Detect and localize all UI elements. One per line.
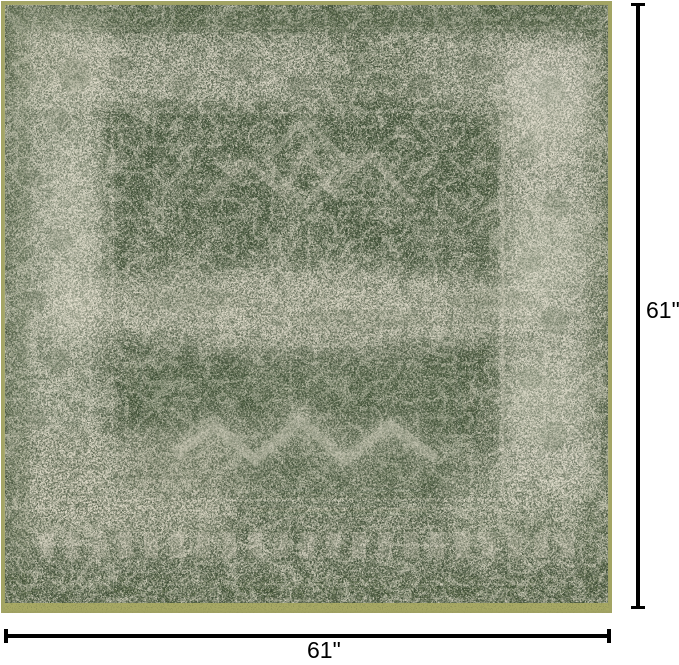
svg-text:61": 61"	[307, 637, 341, 660]
svg-text:61": 61"	[646, 297, 679, 323]
